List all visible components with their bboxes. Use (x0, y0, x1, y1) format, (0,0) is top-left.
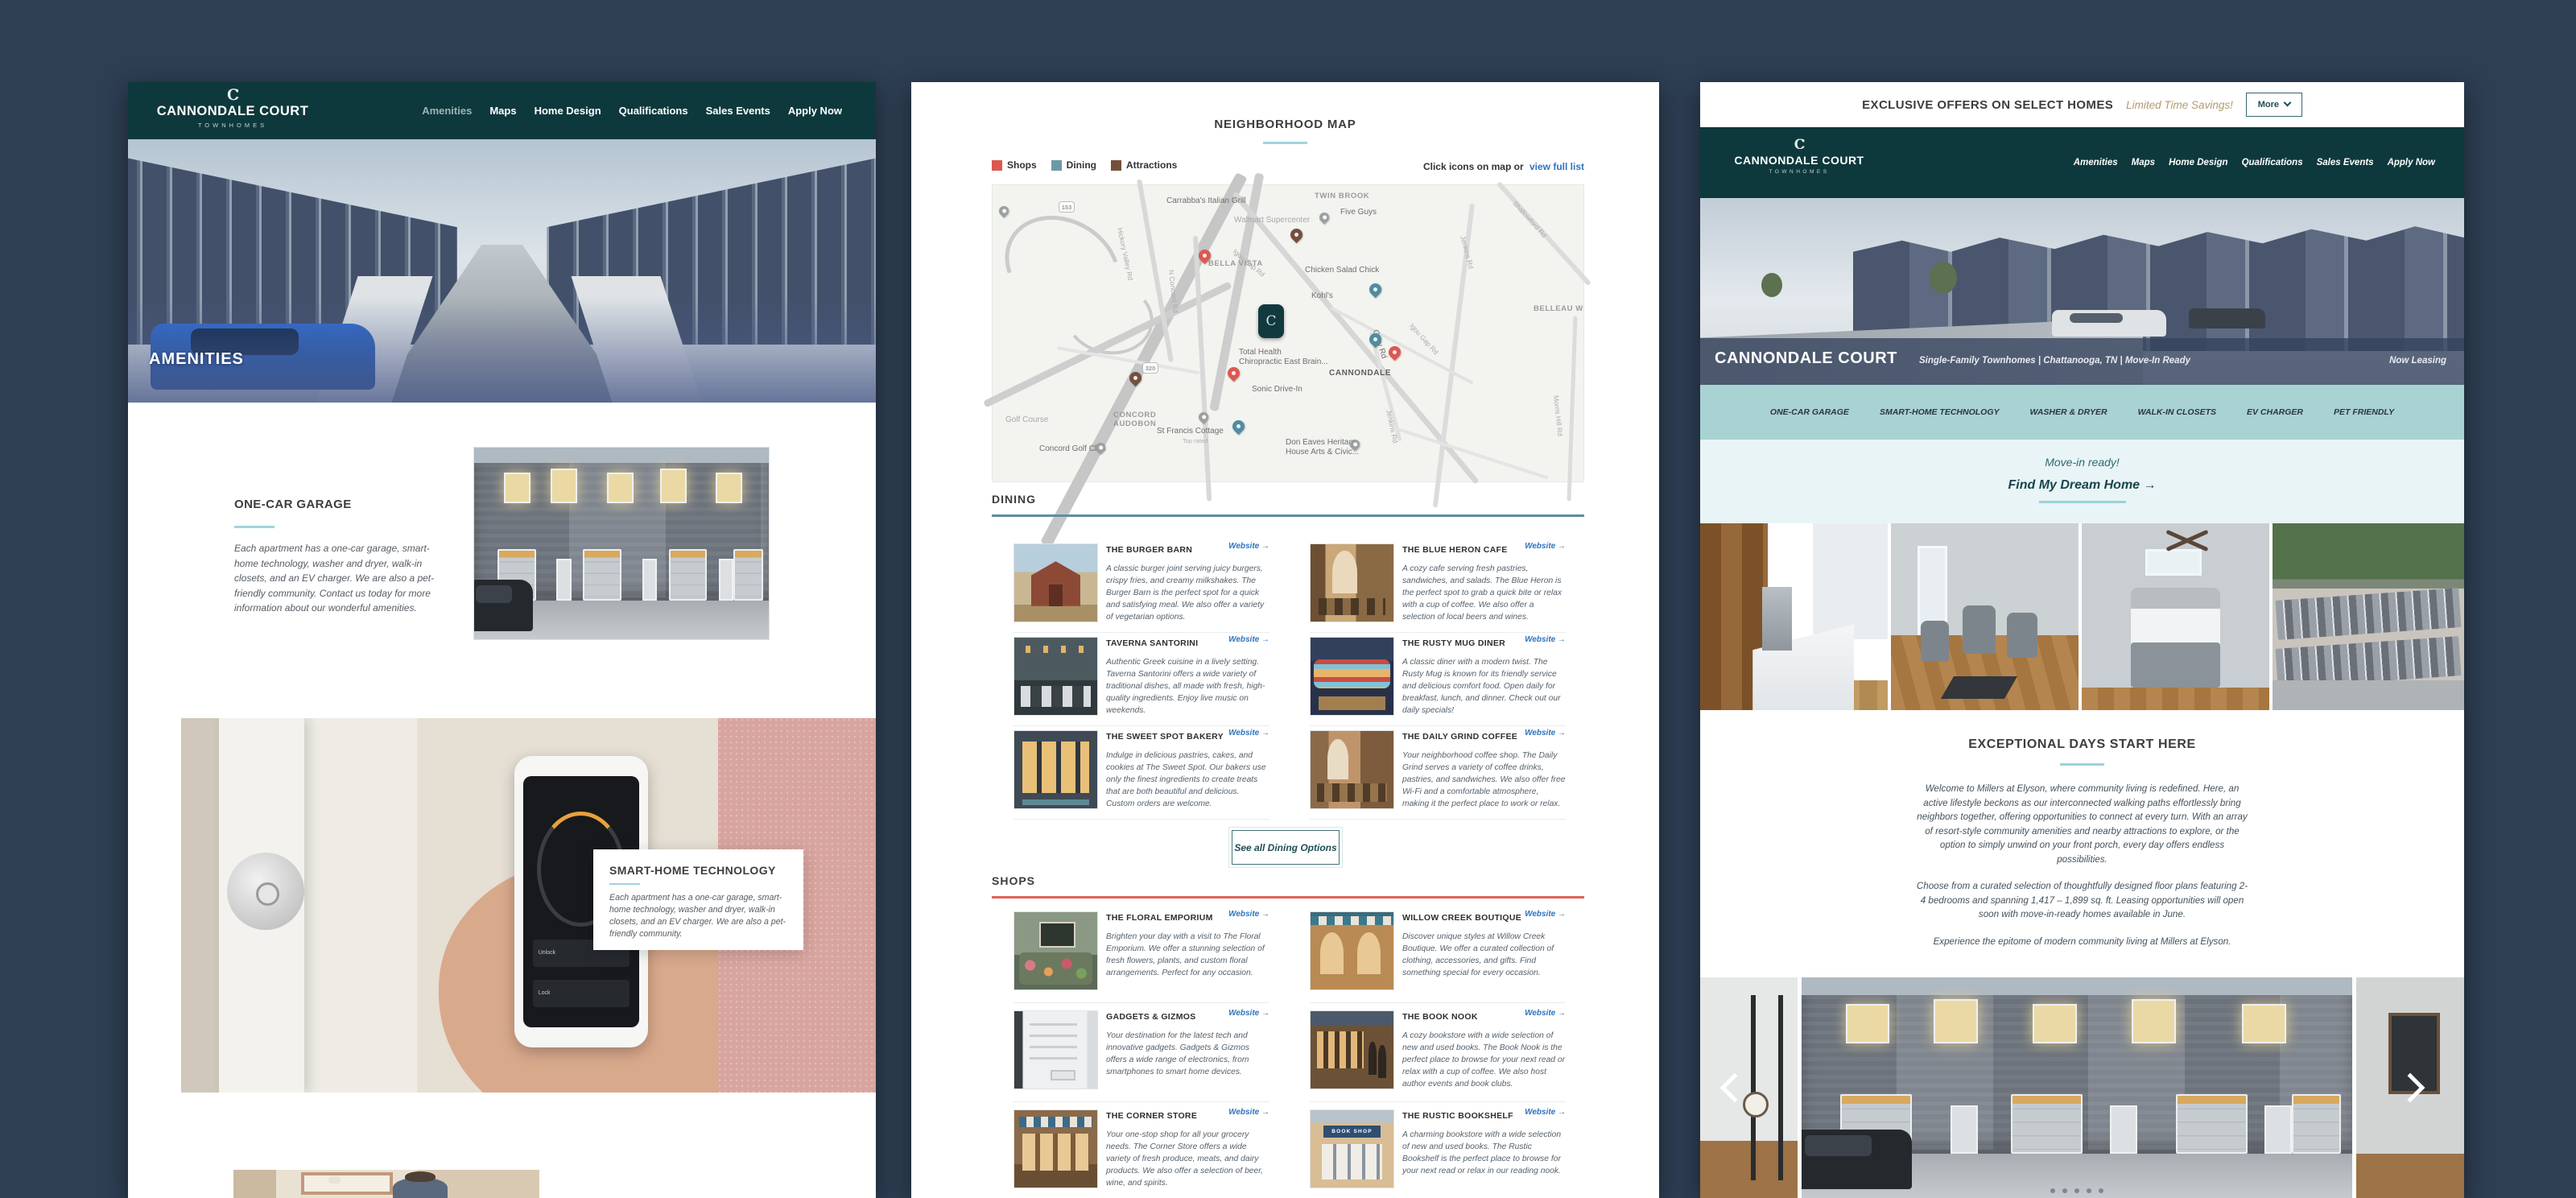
divider (1013, 632, 1269, 633)
nav-home-design[interactable]: Home Design (535, 105, 601, 117)
dining-listing: THE BURGER BARNWebsite → A classic burge… (1013, 542, 1269, 624)
map-pin-dining[interactable] (1230, 418, 1247, 435)
site-logo[interactable]: C CANNONDALE COURT TOWNHOMES (164, 87, 301, 129)
website-link[interactable]: Website → (1525, 910, 1566, 919)
dining-listing: THE BLUE HERON CAFEWebsite → A cozy cafe… (1310, 542, 1566, 624)
nav-home-design[interactable]: Home Design (2169, 158, 2228, 167)
map-label: Chicken Salad Chick (1305, 266, 1379, 275)
smart-section-body: Each apartment has a one-car garage, sma… (609, 892, 787, 940)
map-pin-poi[interactable] (1197, 411, 1211, 424)
logo-monogram-icon: C (1794, 138, 1804, 152)
website-link[interactable]: Website → (1228, 729, 1269, 737)
site-logo[interactable]: C CANNONDALE COURT TOWNHOMES (1739, 138, 1860, 175)
bedroom-photo (2082, 523, 2269, 710)
shops-section-title: SHOPS (992, 874, 1035, 887)
parked-suv (1802, 1130, 1912, 1189)
move-in-ready-label: Move-in ready! (1700, 456, 2464, 469)
garage-title-underline (234, 526, 275, 528)
divider (1013, 1002, 1269, 1003)
legend-dining: Dining (1051, 159, 1096, 171)
listing-desc: Discover unique styles at Willow Creek B… (1402, 931, 1566, 979)
gallery-carousel (1700, 977, 2464, 1198)
listing-desc: A classic diner with a modern twist. The… (1402, 656, 1566, 717)
map-label: St Francis Cottage (1157, 427, 1224, 436)
dining-listing: THE RUSTY MUG DINERWebsite → A classic d… (1310, 635, 1566, 717)
legend-shops: Shops (992, 159, 1037, 171)
garage-photo (473, 447, 770, 640)
logo-tagline: TOWNHOMES (198, 122, 267, 129)
offers-banner: EXCLUSIVE OFFERS ON SELECT HOMES Limited… (1700, 82, 2464, 127)
website-link[interactable]: Website → (1525, 729, 1566, 737)
cta-section: Move-in ready! Find My Dream Home → (1700, 440, 2464, 523)
gallery-photo-current (1802, 977, 2352, 1198)
divider (1310, 819, 1566, 820)
map-pin-poi[interactable] (997, 204, 1011, 218)
smart-home-card: SMART-HOME TECHNOLOGY Each apartment has… (593, 849, 803, 950)
map-pin-poi[interactable] (1318, 211, 1331, 225)
nav-sales-events[interactable]: Sales Events (2317, 158, 2374, 167)
map-road-label: Morris Hill Rd (1552, 395, 1564, 436)
listing-desc: Indulge in delicious pastries, cakes, an… (1106, 750, 1269, 810)
logo-name: CANNONDALE COURT (1734, 154, 1864, 167)
listing-photo (1310, 1010, 1394, 1089)
about-paragraph-1: Welcome to Millers at Elyson, where comm… (1917, 782, 2248, 866)
feature-garage: ONE-CAR GARAGE (1770, 407, 1849, 417)
website-link[interactable]: Website → (1228, 1009, 1269, 1018)
listing-name: THE SWEET SPOT BAKERY (1106, 732, 1224, 742)
about-paragraph-2: Choose from a curated selection of thoug… (1917, 879, 2248, 922)
listing-photo (1310, 730, 1394, 809)
nav-maps[interactable]: Maps (489, 105, 516, 117)
divider (1013, 819, 1269, 820)
browser-page-amenities: C CANNONDALE COURT TOWNHOMES Amenities M… (128, 82, 876, 1198)
smart-section-title: SMART-HOME TECHNOLOGY (609, 864, 787, 877)
dining-section-title: DINING (992, 493, 1036, 506)
nav-qualifications[interactable]: Qualifications (2242, 158, 2303, 167)
website-link[interactable]: Website → (1228, 910, 1269, 919)
desktop-background: { "brand": {"monogram": "C", "name": "CA… (0, 0, 2576, 1198)
nav-qualifications[interactable]: Qualifications (619, 105, 688, 117)
dining-underline (992, 514, 1584, 517)
listing-photo (1013, 911, 1098, 990)
listing-photo (1013, 543, 1098, 622)
more-button[interactable]: More (2246, 93, 2302, 117)
now-leasing-label: Now Leasing (2389, 356, 2446, 366)
main-nav: Amenities Maps Home Design Qualification… (2074, 127, 2435, 198)
main-nav: Amenities Maps Home Design Qualification… (422, 82, 842, 139)
feature-smart-home: SMART-HOME TECHNOLOGY (1880, 407, 2000, 417)
listing-name: THE DAILY GRIND COFFEE (1402, 732, 1517, 742)
feature-pet-friendly: PET FRIENDLY (2334, 407, 2394, 417)
page-title: AMENITIES (149, 350, 244, 369)
dining-listing: THE DAILY GRIND COFFEEWebsite → Your nei… (1310, 729, 1566, 811)
website-link[interactable]: Website → (1228, 635, 1269, 644)
kitchen-photo (1700, 523, 1888, 710)
map-label: Sonic Drive-In (1252, 385, 1302, 394)
map-label: Don Eaves Heritage (1286, 438, 1358, 447)
smart-title-underline (609, 883, 640, 885)
map-label: CANNONDALE (1329, 369, 1391, 378)
website-link[interactable]: Website → (1525, 1009, 1566, 1018)
listing-name: WILLOW CREEK BOUTIQUE (1402, 913, 1521, 923)
book-shop-sign: BOOK SHOP (1323, 1126, 1380, 1137)
about-title: EXCEPTIONAL DAYS START HERE (1700, 737, 2464, 752)
listing-photo: BOOK SHOP (1310, 1109, 1394, 1188)
feature-washer-dryer: WASHER & DRYER (2030, 407, 2107, 417)
divider (1310, 632, 1566, 633)
phone-lock-button: Lock (533, 980, 630, 1007)
about-section: EXCEPTIONAL DAYS START HERE Welcome to M… (1700, 710, 2464, 977)
shop-listing: GADGETS & GIZMOSWebsite → Your destinati… (1013, 1009, 1269, 1091)
chevron-down-icon (2284, 99, 2292, 107)
map-page-title: NEIGHBORHOOD MAP (911, 118, 1659, 131)
listing-photo (1013, 1109, 1098, 1188)
nav-amenities[interactable]: Amenities (2074, 158, 2118, 167)
listing-desc: Brighten your day with a visit to The Fl… (1106, 931, 1269, 979)
shops-swatch-icon (992, 160, 1002, 171)
listing-desc: Your neighborhood coffee shop. The Daily… (1402, 750, 1566, 810)
dining-listing: THE SWEET SPOT BAKERYWebsite → Indulge i… (1013, 729, 1269, 811)
listing-photo (1310, 543, 1394, 622)
nav-apply-now[interactable]: Apply Now (2388, 158, 2435, 167)
dining-listing: TAVERNA SANTORINIWebsite → Authentic Gre… (1013, 635, 1269, 717)
nav-apply-now[interactable]: Apply Now (788, 105, 842, 117)
map-label: Golf Course (1005, 415, 1048, 424)
garage-section-title: ONE-CAR GARAGE (234, 498, 352, 511)
listing-desc: A cozy bookstore with a wide selection o… (1402, 1030, 1566, 1090)
about-paragraph-3: Experience the epitome of modern communi… (1917, 935, 2248, 949)
map-label: Total Health (1239, 348, 1282, 357)
map-label: BELLEAU W (1534, 304, 1583, 313)
listing-desc: A cozy cafe serving fresh pastries, sand… (1402, 563, 1566, 623)
map-road-label: Shallowford Rd (1511, 200, 1548, 240)
browser-page-home: EXCLUSIVE OFFERS ON SELECT HOMES Limited… (1700, 82, 2464, 1198)
shop-listing: THE BOOK NOOKWebsite → A cozy bookstore … (1310, 1009, 1566, 1091)
shop-listing: THE CORNER STOREWebsite → Your one-stop … (1013, 1108, 1269, 1190)
divider (1310, 1002, 1566, 1003)
map-pin-attraction[interactable] (1288, 226, 1305, 243)
nav-maps[interactable]: Maps (2132, 158, 2155, 167)
listing-photo (1310, 637, 1394, 716)
map-label: CONCORD (1113, 411, 1156, 419)
logo-monogram-icon: C (227, 87, 239, 103)
hero-tagline: Single-Family Townhomes | Chattanooga, T… (1919, 356, 2190, 366)
site-header: C CANNONDALE COURT TOWNHOMES Amenities M… (128, 82, 876, 139)
logo-name: CANNONDALE COURT (157, 104, 309, 119)
divider (1310, 1101, 1566, 1102)
map-label: Five Guys (1340, 208, 1377, 217)
offers-title: EXCLUSIVE OFFERS ON SELECT HOMES (1862, 98, 2113, 112)
smart-lock (227, 853, 304, 930)
shops-underline (992, 896, 1584, 898)
dining-swatch-icon (1051, 160, 1062, 171)
listing-name: THE RUSTIC BOOKSHELF (1402, 1111, 1513, 1121)
listing-name: TAVERNA SANTORINI (1106, 638, 1198, 648)
parked-car (2052, 310, 2166, 336)
divider (1013, 725, 1269, 726)
map-label: TWIN BROOK (1315, 192, 1369, 200)
map-legend: Shops Dining Attractions (992, 159, 1177, 171)
listing-name: THE BOOK NOOK (1402, 1012, 1478, 1022)
website-link[interactable]: Website → (1525, 1108, 1566, 1117)
listing-name: THE RUSTY MUG DINER (1402, 638, 1505, 648)
map-label: Top rated (1183, 437, 1207, 444)
highway-shield: 320 (1142, 362, 1158, 374)
shop-listing: WILLOW CREEK BOUTIQUEWebsite → Discover … (1310, 910, 1566, 992)
view-full-list-link[interactable]: view full list (1529, 161, 1584, 172)
listing-name: THE FLORAL EMPORIUM (1106, 913, 1213, 923)
map-pin-shop[interactable] (1225, 365, 1242, 382)
listing-desc: A classic burger joint serving juicy bur… (1106, 563, 1269, 623)
attractions-swatch-icon (1111, 160, 1121, 171)
nav-amenities[interactable]: Amenities (422, 105, 472, 117)
home-hero-photo: CANNONDALE COURT Single-Family Townhomes… (1700, 198, 2464, 385)
amenities-hero-photo: AMENITIES (128, 139, 876, 403)
living-room-photo (1891, 523, 2079, 710)
garage-section-body: Each apartment has a one-car garage, sma… (234, 541, 437, 616)
hero-title: CANNONDALE COURT (1715, 349, 1897, 368)
feature-ev-charger: EV CHARGER (2247, 407, 2303, 417)
listing-desc: Authentic Greek cuisine in a lively sett… (1106, 656, 1269, 717)
see-all-dining-button[interactable]: See all Dining Options (1232, 830, 1340, 865)
neighborhood-map[interactable]: Carrabba's Italian Grill TWIN BROOK Five… (992, 184, 1584, 482)
map-label: Chiropractic East Brain... (1239, 357, 1328, 366)
legend-attractions: Attractions (1111, 159, 1177, 171)
listing-photo (1013, 730, 1098, 809)
highway-shield: 153 (1059, 201, 1075, 213)
about-underline (2060, 763, 2104, 766)
map-title-underline (1263, 142, 1307, 144)
shop-listing: THE FLORAL EMPORIUMWebsite → Brighten yo… (1013, 910, 1269, 992)
listing-name: GADGETS & GIZMOS (1106, 1012, 1196, 1022)
offers-subtitle: Limited Time Savings! (2126, 99, 2233, 111)
site-header: C CANNONDALE COURT TOWNHOMES Amenities M… (1700, 127, 2464, 198)
listing-name: THE BURGER BARN (1106, 545, 1192, 555)
find-home-link[interactable]: Find My Dream Home → (2008, 478, 2156, 493)
feature-closets: WALK-IN CLOSETS (2138, 407, 2216, 417)
aerial-photo (2273, 523, 2464, 710)
website-link[interactable]: Website → (1228, 1108, 1269, 1117)
divider (1013, 1101, 1269, 1102)
divider (1310, 725, 1566, 726)
shop-listing: BOOK SHOP THE RUSTIC BOOKSHELFWebsite → … (1310, 1108, 1566, 1190)
map-label: Carrabba's Italian Grill (1166, 196, 1246, 205)
nav-sales-events[interactable]: Sales Events (706, 105, 770, 117)
browser-page-neighborhood-map: NEIGHBORHOOD MAP Shops Dining Attraction… (911, 82, 1659, 1198)
listing-name: THE BLUE HERON CAFE (1402, 545, 1508, 555)
map-road-label: Jenkins Rd (1459, 235, 1476, 270)
map-label: AUDOBON (1113, 419, 1156, 428)
hero-overlay-bar: CANNONDALE COURT Single-Family Townhomes… (1700, 338, 2464, 385)
listing-desc: A charming bookstore with a wide selecti… (1402, 1129, 1566, 1177)
listing-name: THE CORNER STORE (1106, 1111, 1197, 1121)
logo-tagline: TOWNHOMES (1769, 169, 1829, 175)
map-pin-dining[interactable] (1367, 281, 1384, 298)
laundry-photo (233, 1170, 539, 1198)
feature-bar: ONE-CAR GARAGE SMART-HOME TECHNOLOGY WAS… (1700, 385, 2464, 440)
listing-photo (1013, 1010, 1098, 1089)
map-label: Kohl's (1311, 291, 1333, 300)
carousel-dots[interactable] (2050, 1188, 2103, 1193)
map-hint: Click icons on map or view full list (1423, 161, 1584, 172)
ceiling-fan (2165, 531, 2210, 549)
parked-car (2189, 308, 2265, 329)
map-pin-cannondale-logo[interactable]: C (1258, 304, 1284, 338)
cta-underline (2039, 501, 2126, 503)
map-label: House Arts & Civic... (1286, 448, 1359, 456)
website-link[interactable]: Website → (1525, 635, 1566, 644)
parked-suv (473, 580, 533, 631)
website-link[interactable]: Website → (1228, 542, 1269, 551)
listing-desc: Your destination for the latest tech and… (1106, 1030, 1269, 1078)
map-label: Walmart Supercenter (1234, 216, 1310, 225)
listing-desc: Your one-stop shop for all your grocery … (1106, 1129, 1269, 1189)
listing-photo (1310, 911, 1394, 990)
website-link[interactable]: Website → (1525, 542, 1566, 551)
listing-photo (1013, 637, 1098, 716)
